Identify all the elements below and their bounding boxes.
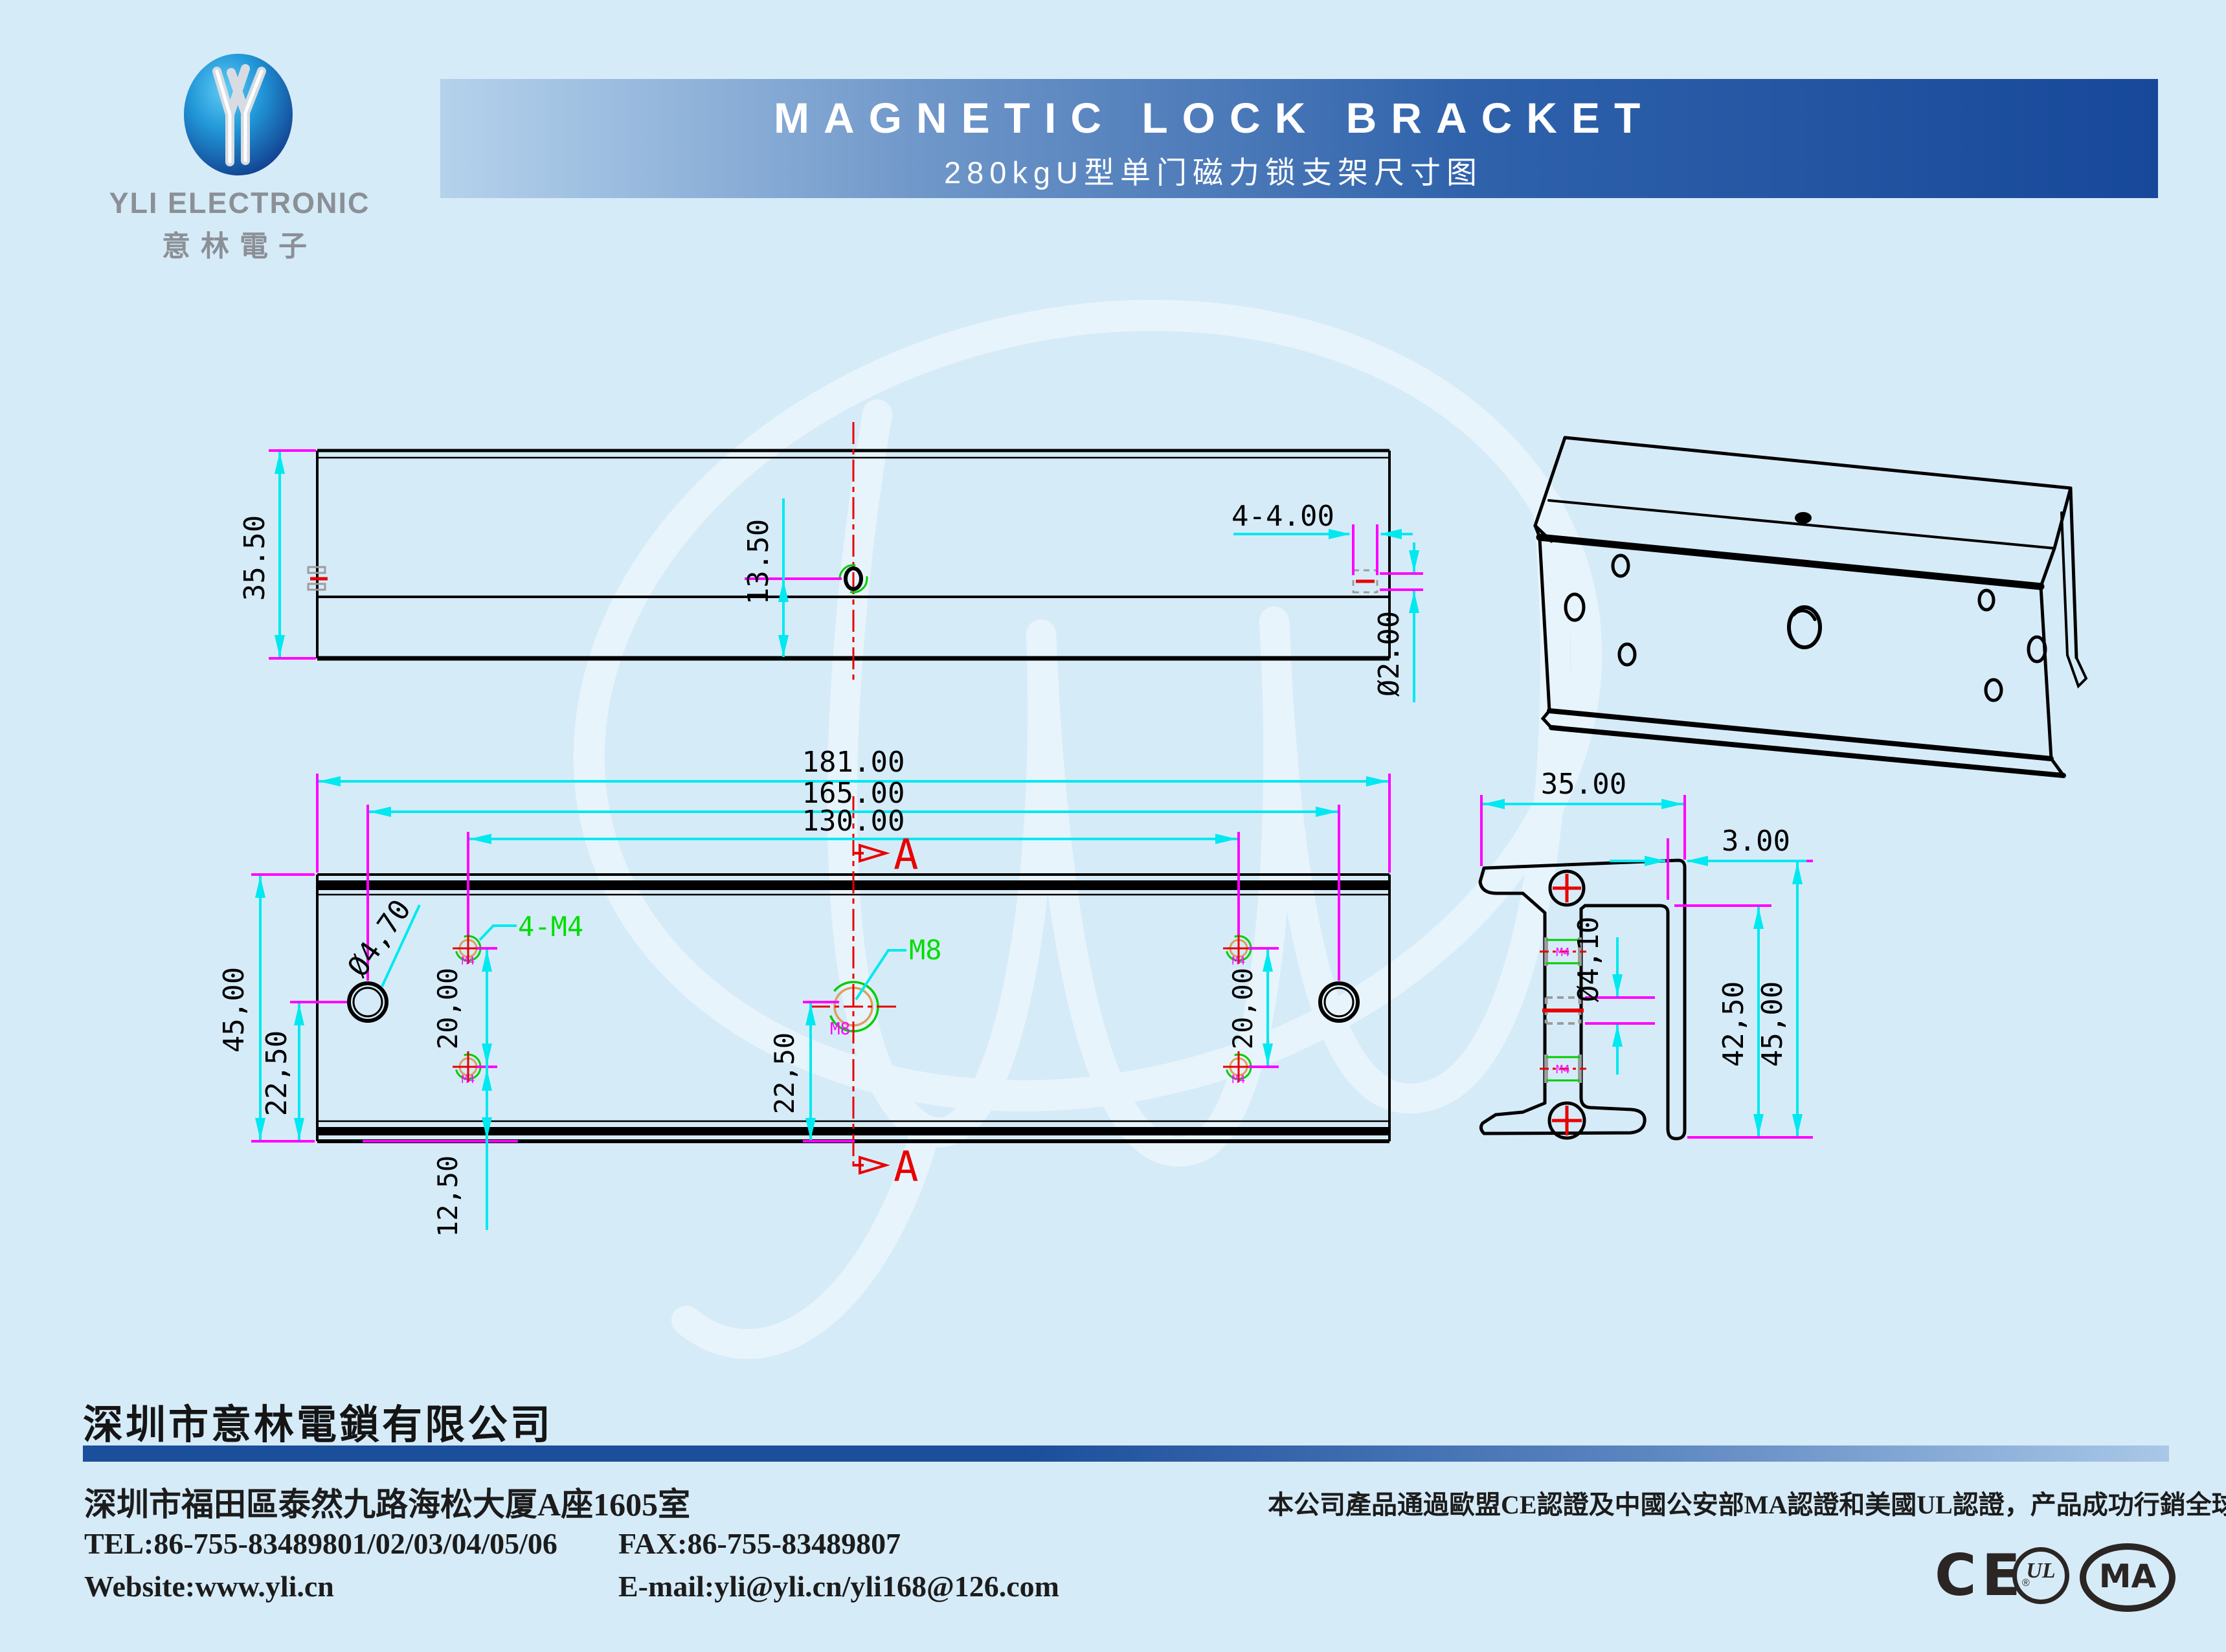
phone-number: TEL:86-755-83489801/02/03/04/05/06 xyxy=(84,1526,557,1561)
section-label-top: A xyxy=(894,831,919,879)
m4-mark: M4 xyxy=(1232,955,1245,968)
title-banner: MAGNETIC LOCK BRACKET 280kgU型单门磁力锁支架尺寸图 xyxy=(440,79,2158,198)
section-marker-bottom xyxy=(853,1157,886,1173)
certification-note: 本公司產品通過歐盟CE認證及中國公安部MA認證和美國UL認證，产品成功行銷全球1… xyxy=(1268,1484,2226,1521)
website-link[interactable]: Website:www.yli.cn xyxy=(84,1569,334,1603)
page-title: MAGNETIC LOCK BRACKET xyxy=(774,93,1654,142)
iso-m4-hole xyxy=(1619,644,1635,665)
iso-m4-hole xyxy=(1986,680,2001,700)
dim-section-inner-height: 42,50 xyxy=(1717,981,1750,1067)
dim-top-hole-offset: 13.50 xyxy=(742,519,775,605)
dim-front-width: 181.00 xyxy=(802,746,905,779)
m4-mark: M4 xyxy=(1556,1063,1570,1077)
iso-m4-hole xyxy=(1979,590,1994,610)
email-link[interactable]: E-mail:yli@yli.cn/yli168@126.com xyxy=(618,1569,1059,1603)
dim-top-hole-dia: Ø2.00 xyxy=(1373,611,1406,697)
iso-view xyxy=(1535,438,2086,776)
yli-watermark xyxy=(505,213,1670,1344)
top-view: 35.50 13.50 4-4.00 Ø2.00 xyxy=(238,422,1423,702)
yli-logo-icon xyxy=(183,53,293,176)
big-hole-left xyxy=(349,983,387,1021)
callout-m8: M8 xyxy=(909,934,942,966)
iso-top-hole xyxy=(1795,512,1812,524)
ul-logo-icon: UL ® xyxy=(2012,1547,2069,1604)
m4-mark: M4 xyxy=(462,1073,475,1086)
footer-divider-bar xyxy=(83,1445,2169,1462)
page-subtitle: 280kgU型单门磁力锁支架尺寸图 xyxy=(944,148,1483,192)
callout-4-m4: 4-M4 xyxy=(518,911,583,943)
dim-section-hole-dia: Ø4,10 xyxy=(1572,917,1605,1002)
dim-front-height: 45,00 xyxy=(218,967,251,1053)
company-name: 深圳市意林電鎖有限公司 xyxy=(83,1392,553,1450)
dim-section-height: 45,00 xyxy=(1756,981,1789,1067)
ul-registered-mark: ® xyxy=(2022,1578,2030,1589)
section-label-bottom: A xyxy=(894,1143,919,1191)
dim-section-width: 35.00 xyxy=(1541,768,1626,801)
m8-mark: M8 xyxy=(830,1020,850,1039)
dim-top-holes: 4-4.00 xyxy=(1231,500,1334,533)
dim-top-height: 35.50 xyxy=(238,515,271,601)
dim-front-big-hole-dia: Ø4,70 xyxy=(341,894,418,983)
company-address: 深圳市福田區泰然九路海松大厦A座1605室 xyxy=(84,1479,690,1525)
m4-mark: M4 xyxy=(1232,1073,1245,1086)
front-view: 181.00 165.00 130.00 45,00 22,50 20,00 1… xyxy=(218,746,1389,1237)
ma-logo-text: MA xyxy=(2086,1550,2169,1603)
fax-number: FAX:86-755-83489807 xyxy=(618,1526,901,1561)
section-marker-top xyxy=(853,845,886,861)
logo-name-cn: 意林電子 xyxy=(84,223,395,264)
flange-hole-bottom xyxy=(1549,1103,1584,1138)
m4-mark: M4 xyxy=(1556,946,1570,959)
dim-front-pitch-right: 20,00 xyxy=(1227,968,1259,1049)
iso-m4-hole xyxy=(1613,555,1628,576)
ma-logo-icon: MA xyxy=(2080,1543,2175,1612)
logo xyxy=(183,53,293,176)
logo-name: YLI ELECTRONIC xyxy=(84,186,395,220)
flange-hole-top xyxy=(1550,871,1584,905)
m4-mark: M4 xyxy=(462,955,475,968)
dim-front-edge-center: 22,50 xyxy=(260,1031,293,1116)
dim-front-pitch-left: 20,00 xyxy=(432,968,464,1049)
dim-front-m4-span: 130.00 xyxy=(802,805,905,838)
iso-big-hole xyxy=(2029,637,2045,662)
dim-section-wall: 3.00 xyxy=(1722,825,1790,858)
dim-front-center-offset: 22,50 xyxy=(769,1032,800,1114)
dim-front-m4-edge: 12,50 xyxy=(432,1155,464,1237)
